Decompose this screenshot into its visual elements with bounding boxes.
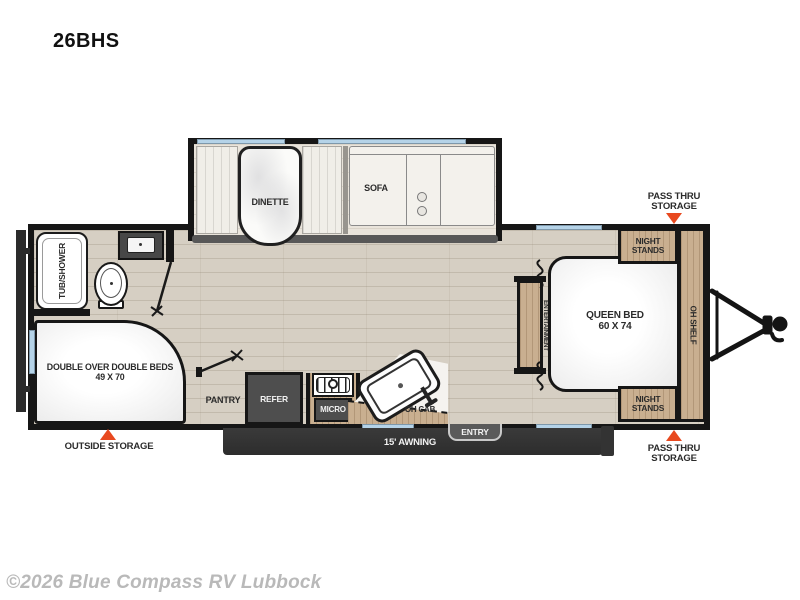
bumper-bracket — [26, 248, 30, 254]
floorplan-canvas: 26BHS SOFA DINETTE TUB/SHOWER — [0, 0, 800, 600]
bunk-bed-label-line2: 49 X 70 — [40, 372, 180, 382]
sofa-label: SOFA — [346, 183, 406, 193]
hitch — [712, 291, 787, 359]
dinette-bench-right — [302, 146, 342, 234]
refer-label: REFER — [260, 394, 288, 404]
toilet-drain-icon — [110, 282, 113, 285]
entry-label: ENTRY — [461, 427, 489, 437]
dinette-label: DINETTE — [238, 197, 302, 207]
sink-drain-icon — [139, 243, 142, 246]
cooktop — [312, 373, 354, 397]
entry-step — [601, 426, 614, 456]
micro-label: MICRO — [320, 405, 346, 415]
sofa-seat-divider — [406, 155, 407, 225]
pass-thru-marker-icon — [666, 213, 682, 224]
burner-icon — [328, 379, 338, 389]
tub-shower: TUB/SHOWER — [36, 232, 88, 310]
window — [536, 225, 602, 230]
slide-step-bar — [192, 235, 498, 243]
bathroom-sink — [118, 231, 164, 260]
copyright-text: ©2026 Blue Compass RV Lubbock — [6, 572, 321, 594]
nightstand-top-line2: STANDS — [632, 246, 664, 255]
bunk-bed-label-line1: DOUBLE OVER DOUBLE BEDS — [40, 362, 180, 372]
outside-storage-marker-icon — [100, 429, 116, 440]
refrigerator: REFER — [245, 372, 303, 425]
oh-cab-label: OH CAB — [392, 405, 448, 415]
microwave: MICRO — [314, 398, 352, 422]
oh-shelf-label: OH SHELF — [687, 306, 697, 345]
dinette-bench-left — [196, 146, 238, 234]
entertainment-center: ENTERTAINMENT CENTER — [517, 280, 543, 370]
outside-storage-callout: OUTSIDE STORAGE — [44, 442, 174, 452]
pass-thru-marker-icon — [666, 430, 682, 441]
window — [318, 139, 466, 144]
bathroom-bottom-wall — [34, 309, 90, 316]
queen-bed-label: QUEEN BED 60 X 74 — [560, 310, 670, 332]
window — [197, 139, 285, 144]
pantry-door-hinge — [196, 367, 202, 377]
bathroom-wall-stub — [166, 228, 174, 262]
sofa-backrest — [350, 154, 494, 155]
nightstand-bottom-label: NIGHT STANDS — [632, 395, 664, 413]
sofa-seat-divider — [440, 155, 441, 225]
nightstand-bottom-line2: STANDS — [632, 404, 664, 413]
nightstand-top-label: NIGHT STANDS — [632, 237, 664, 255]
toilet — [94, 262, 128, 306]
pass-thru-top-line2: STORAGE — [634, 202, 714, 212]
overhead-shelf: OH SHELF — [678, 228, 706, 422]
cupholder-icon — [417, 206, 427, 216]
queen-bed-label-line1: QUEEN BED — [560, 310, 670, 321]
page-title: 26BHS — [53, 30, 119, 53]
bumper-bracket — [26, 386, 30, 392]
entry-door: ENTRY — [448, 424, 502, 441]
cupholder-icon — [417, 192, 427, 202]
dinette-table — [238, 146, 302, 246]
pantry-label: PANTRY — [196, 395, 250, 405]
tub-shower-label: TUB/SHOWER — [57, 243, 67, 299]
bunk-bed-label: DOUBLE OVER DOUBLE BEDS 49 X 70 — [40, 362, 180, 382]
pass-thru-bottom-line2: STORAGE — [634, 454, 714, 464]
nightstand-top: NIGHT STANDS — [618, 228, 678, 264]
pass-thru-storage-callout-bottom: PASS THRU STORAGE — [634, 444, 714, 464]
rear-bumper — [16, 230, 26, 412]
pass-thru-storage-callout-top: PASS THRU STORAGE — [634, 192, 714, 212]
window — [29, 330, 35, 374]
queen-bed-label-line2: 60 X 74 — [560, 321, 670, 332]
nightstand-bottom: NIGHT STANDS — [618, 386, 678, 422]
